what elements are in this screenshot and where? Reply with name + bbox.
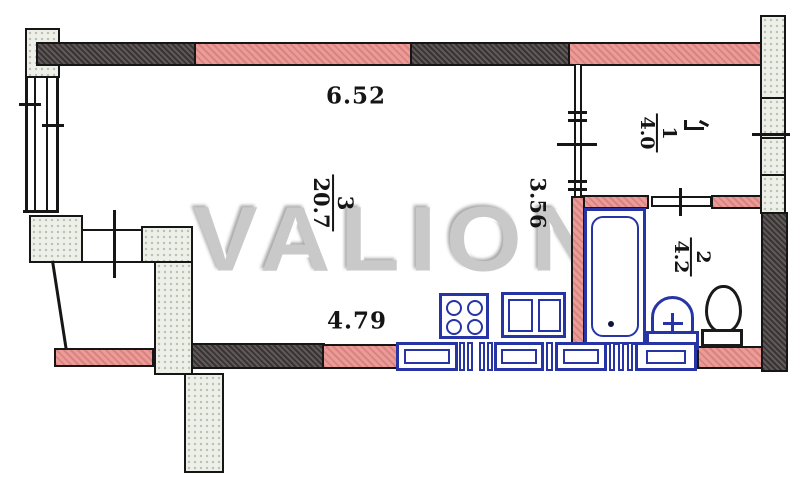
room-number: 3 — [334, 193, 356, 214]
counter-divider-4 — [487, 342, 493, 371]
counter-divider-7 — [618, 342, 624, 371]
counter-divider-6 — [609, 342, 615, 371]
bathtub-inner — [591, 216, 639, 337]
bay-sill-pink — [54, 348, 154, 367]
counter-divider-2 — [467, 342, 473, 371]
wall-right-dark — [761, 212, 788, 372]
balcony-window-line-4 — [56, 77, 59, 213]
wall-tick-b1 — [568, 180, 587, 183]
bathtub-drain — [608, 321, 614, 327]
counter-section-4-inner — [646, 350, 686, 364]
counter-divider-5 — [546, 342, 553, 371]
wall-top-segment-pink-1 — [194, 42, 412, 66]
balcony-window-line-1 — [25, 77, 28, 213]
wall-top-segment-dark-2 — [410, 42, 570, 66]
dimension-top-width: 6.52 — [326, 83, 386, 110]
dimension-bottom-width: 4.79 — [327, 308, 387, 335]
bay-wall-right — [141, 226, 193, 263]
wall-top-segment-pink-2 — [568, 42, 762, 66]
stove-burner-3 — [446, 319, 462, 335]
counter-section-2-inner — [501, 349, 537, 364]
counter-section-1-inner — [404, 349, 450, 364]
stove-burner-4 — [467, 319, 483, 335]
toilet-bowl — [705, 285, 742, 333]
wash-basin-tap-v — [671, 313, 674, 333]
bath-wall-top-right — [711, 195, 762, 209]
room-number: 2 — [692, 247, 712, 266]
room-area: 4.2 — [670, 237, 692, 276]
room-label-bathroom: 2 4.2 — [670, 237, 712, 276]
wall-column-b — [184, 373, 224, 473]
wall-tick-cross — [557, 143, 597, 146]
room-label-living-room: 3 20.7 — [310, 174, 356, 231]
counter-divider-8 — [627, 342, 633, 371]
counter-divider-1 — [459, 342, 465, 371]
wall-top-segment-dark-1 — [36, 42, 196, 66]
wall-tick-a2 — [568, 119, 587, 122]
bay-slant-wall — [51, 261, 68, 353]
bay-wall-left — [29, 215, 83, 263]
wall-tick-b2 — [568, 188, 587, 191]
balcony-window-line-3 — [46, 77, 48, 213]
kitchen-sink-bowl-right — [538, 299, 561, 332]
bath-door-leaf — [651, 196, 712, 207]
wall-bottom-pink-right — [697, 346, 763, 369]
wall-bottom-pink-left — [322, 344, 399, 369]
balcony-window-tick-2 — [42, 124, 64, 127]
bath-door-tick — [679, 188, 682, 216]
stove-burner-1 — [446, 300, 462, 316]
bath-wall-top-left — [581, 195, 649, 209]
bay-door-tick — [113, 210, 116, 278]
dimension-height: 3.56 — [526, 177, 551, 228]
counter-section-3-inner — [563, 349, 599, 364]
counter-divider-3 — [479, 342, 485, 371]
wall-right-block-4 — [760, 174, 786, 214]
stove — [439, 293, 489, 339]
kitchen-sink-bowl-left — [508, 299, 533, 332]
floor-plan: VALION — [0, 0, 800, 485]
vent-mark-horizontal — [684, 127, 704, 130]
balcony-window-line-2 — [34, 77, 36, 213]
room-area: 20.7 — [310, 174, 334, 231]
balcony-window-sill-line — [23, 210, 59, 213]
room-number: 1 — [658, 123, 678, 142]
stove-burner-2 — [467, 300, 483, 316]
bath-wall-vertical — [571, 196, 585, 349]
room-area: 4.0 — [636, 113, 658, 152]
balcony-window-tick-1 — [19, 103, 41, 106]
wall-column-a — [154, 261, 193, 375]
wall-right-tick — [752, 133, 790, 136]
wall-tick-a1 — [568, 111, 587, 114]
wall-right-block-1 — [760, 15, 786, 99]
toilet-base — [701, 329, 743, 347]
wall-right-block-3 — [760, 137, 786, 176]
wall-interior-vertical — [574, 65, 582, 198]
room-label-room-1: 1 4.0 — [636, 113, 678, 152]
vent-mark-vertical — [684, 120, 687, 130]
